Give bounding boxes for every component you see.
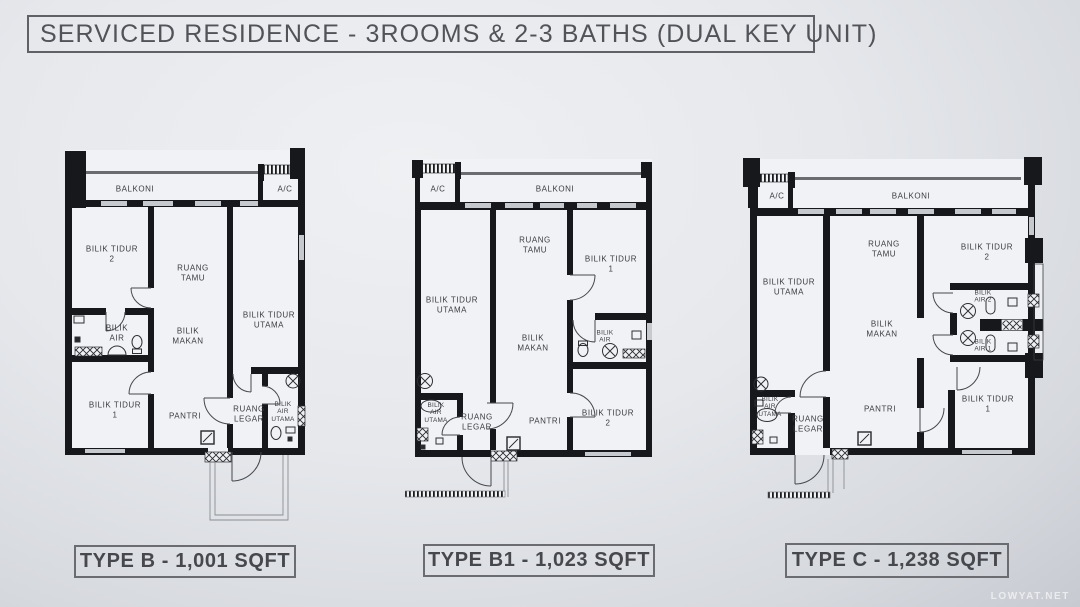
corridor-outline <box>405 461 508 497</box>
slide-title: SERVICED RESIDENCE - 3ROOMS & 2-3 BATHS … <box>40 20 878 49</box>
room-label-bilik-air-2: BILIKAIR 2 <box>974 290 991 305</box>
floorplan-type-b: BALKONI A/C BILIK TIDUR2 RUANGTAMU BILIK… <box>55 140 320 530</box>
room-label-bilik-tidur-1: BILIK TIDUR1 <box>585 255 637 274</box>
room-label-bilik-tidur-2: BILIK TIDUR2 <box>582 409 634 428</box>
type-b-label: TYPE B - 1,001 SQFT <box>80 550 290 573</box>
room-label-bilik-air-utama: BILIKAIRUTAMA <box>758 396 781 418</box>
room-label-pantri: PANTRI <box>169 411 201 421</box>
room-label-bilik-air-utama: BILIKAIRUTAMA <box>424 402 447 424</box>
floorplan-type-b1: A/C BALKONI BILIK TIDURUTAMA RUANGTAMU B… <box>405 145 655 525</box>
room-label-ac: A/C <box>770 191 785 201</box>
room-label-bilik-tidur-1: BILIK TIDUR1 <box>89 401 141 420</box>
room-label-bilik-air-1: BILIKAIR 1 <box>974 339 991 354</box>
room-label-bilik-tidur-2: BILIK TIDUR2 <box>961 243 1013 262</box>
room-label-ruang-legar: RUANGLEGAR <box>792 415 824 434</box>
room-label-bilik-tidur-1: BILIK TIDUR1 <box>962 395 1014 414</box>
floorplan-type-c: A/C BALKONI BILIK TIDURUTAMA RUANGTAMU B… <box>740 145 1050 525</box>
room-label-bilik-makan: BILIKMAKAN <box>517 334 548 353</box>
room-label-balkoni: BALKONI <box>892 191 931 201</box>
room-label-bilik-makan: BILIKMAKAN <box>172 327 203 346</box>
room-label-ruang-tamu: RUANGTAMU <box>868 240 900 259</box>
type-c-label: TYPE C - 1,238 SQFT <box>792 549 1002 572</box>
room-label-pantri: PANTRI <box>864 404 896 414</box>
room-label-bilik-tidur-utama: BILIK TIDURUTAMA <box>426 296 478 315</box>
room-label-bilik-air: BILIKAIR <box>597 330 614 345</box>
room-label-ruang-legar: RUANGLEGAR <box>461 413 493 432</box>
room-label-bilik-tidur-utama: BILIK TIDURUTAMA <box>763 278 815 297</box>
room-label-ac: A/C <box>431 184 446 194</box>
room-label-ruang-legar: RUANGLEGAR <box>233 405 265 424</box>
room-label-ruang-tamu: RUANGTAMU <box>177 264 209 283</box>
room-label-bilik-tidur-utama: BILIK TIDURUTAMA <box>243 311 295 330</box>
type-b1-label: TYPE B1 - 1,023 SQFT <box>428 549 650 572</box>
room-label-bilik-tidur-2: BILIK TIDUR2 <box>86 245 138 264</box>
type-b-label-box: TYPE B - 1,001 SQFT <box>74 545 296 578</box>
slide-title-box: SERVICED RESIDENCE - 3ROOMS & 2-3 BATHS … <box>27 15 815 53</box>
room-label-balkoni: BALKONI <box>116 184 155 194</box>
watermark: LOWYAT.NET <box>991 591 1070 602</box>
room-label-bilik-air: BILIKAIR <box>106 324 128 343</box>
room-label-ruang-tamu: RUANGTAMU <box>519 236 551 255</box>
room-label-ac: A/C <box>278 184 293 194</box>
type-b1-label-box: TYPE B1 - 1,023 SQFT <box>423 544 655 577</box>
type-c-label-box: TYPE C - 1,238 SQFT <box>785 543 1009 578</box>
room-label-pantri: PANTRI <box>529 416 561 426</box>
corridor-outline <box>210 455 288 520</box>
room-label-bilik-makan: BILIKMAKAN <box>866 320 897 339</box>
corridor-outline <box>768 459 844 498</box>
room-label-balkoni: BALKONI <box>536 184 575 194</box>
room-label-bilik-air-utama: BILIKAIRUTAMA <box>271 401 294 423</box>
slide: SERVICED RESIDENCE - 3ROOMS & 2-3 BATHS … <box>0 0 1080 607</box>
